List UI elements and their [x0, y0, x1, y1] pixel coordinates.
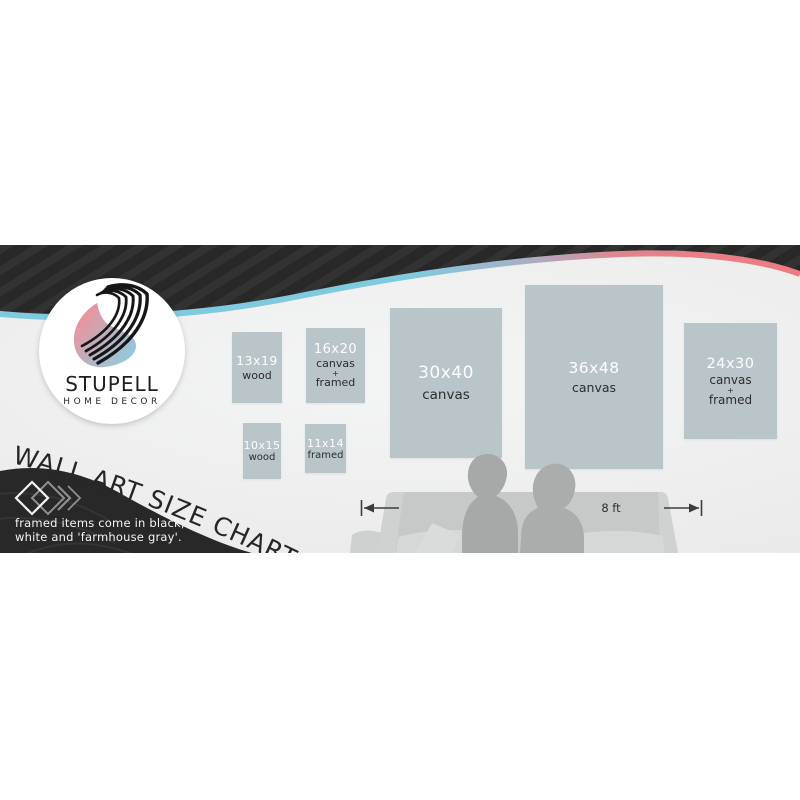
- art-type-label: canvas: [422, 387, 470, 403]
- art-size-label: 36x48: [568, 359, 619, 377]
- art-frame-11x14: 11x14 framed: [305, 424, 346, 473]
- art-frame-36x48: 36x48 canvas: [525, 285, 663, 469]
- framed-note-line1: framed items come in black,: [15, 516, 185, 530]
- brand-subtitle: HOME DECOR: [39, 397, 185, 407]
- page: 13x19 wood 16x20 canvas + framed 10x15 w…: [0, 0, 800, 800]
- brand-name: STUPELL: [39, 372, 185, 396]
- scale-arrows: [362, 500, 702, 516]
- art-type-label: framed: [307, 450, 343, 461]
- art-type-label: canvas: [709, 374, 751, 387]
- art-frame-24x30: 24x30 canvas + framed: [684, 323, 777, 439]
- art-size-label: 11x14: [307, 437, 344, 450]
- art-frame-16x20: 16x20 canvas + framed: [306, 328, 365, 403]
- art-size-label: 30x40: [418, 363, 474, 383]
- brand-logo: STUPELL HOME DECOR: [39, 278, 185, 424]
- art-size-label: 16x20: [314, 342, 357, 357]
- art-type-label: canvas: [572, 380, 616, 395]
- art-size-label: 10x15: [243, 439, 280, 452]
- framed-note-line2: white and 'farmhouse gray'.: [15, 530, 182, 544]
- art-frame-13x19: 13x19 wood: [232, 332, 282, 403]
- art-frame-30x40: 30x40 canvas: [390, 308, 502, 458]
- size-chart-banner: 13x19 wood 16x20 canvas + framed 10x15 w…: [0, 245, 800, 553]
- art-size-label: 24x30: [707, 356, 755, 372]
- art-size-label: 13x19: [236, 353, 278, 368]
- scale-length-label: 8 ft: [594, 501, 628, 515]
- right-arrowhead-icon: [689, 504, 699, 513]
- couch-graphic: [350, 492, 678, 553]
- art-frame-10x15: 10x15 wood: [243, 423, 281, 479]
- diamond-chevron-icon: [16, 482, 80, 514]
- art-type-label: wood: [242, 369, 271, 382]
- left-arrowhead-icon: [364, 504, 374, 513]
- art-type-label: wood: [249, 452, 276, 463]
- art-type-label: framed: [709, 394, 752, 407]
- art-type-label: framed: [316, 377, 356, 389]
